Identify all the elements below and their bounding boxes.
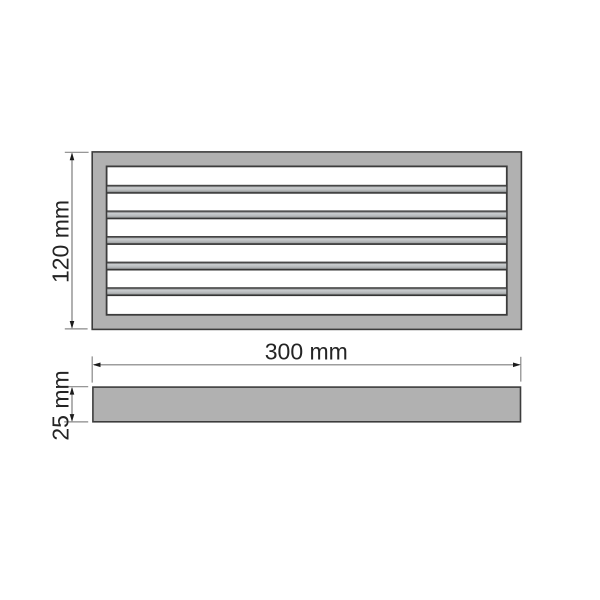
svg-text:120 mm: 120 mm	[48, 200, 74, 283]
svg-text:25 mm: 25 mm	[48, 370, 74, 440]
svg-text:300 mm: 300 mm	[265, 339, 348, 365]
